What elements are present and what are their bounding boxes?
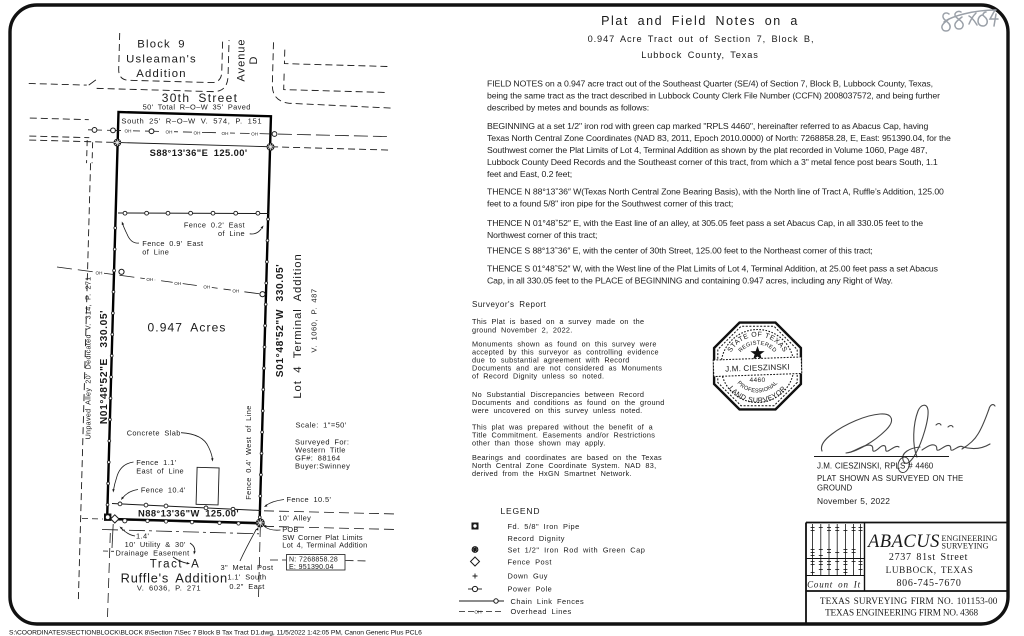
svg-text:feet and East, 0.2 feet;: feet and East, 0.2 feet; — [487, 169, 572, 179]
svg-text:Lot 4 Terminal Addition: Lot 4 Terminal Addition — [292, 253, 304, 398]
svg-text:ABACUS: ABACUS — [866, 532, 940, 552]
svg-text:10' Alley: 10' Alley — [278, 514, 311, 523]
svg-text:BEGINNING at a set 1/2" iron r: BEGINNING at a set 1/2" iron rod with gr… — [487, 121, 929, 131]
svg-text:OH: OH — [174, 281, 181, 286]
svg-text:E: 951390.04: E: 951390.04 — [289, 564, 334, 571]
svg-text:Unpaved Alley 20' Dedicated V.: Unpaved Alley 20' Dedicated V. 314, P. 2… — [84, 277, 93, 440]
svg-text:Chain Link Fences: Chain Link Fences — [511, 597, 585, 606]
svg-text:Fence 0.4' West of Line: Fence 0.4' West of Line — [244, 405, 253, 499]
svg-text:0.2" East: 0.2" East — [229, 582, 264, 591]
svg-text:ground November 2, 2022.: ground November 2, 2022. — [472, 325, 573, 334]
svg-text:Plat and Field Notes on a: Plat and Field Notes on a — [601, 14, 799, 28]
svg-text:S:\COORDINATES\SECTIONBLOCK\BL: S:\COORDINATES\SECTIONBLOCK\BLOCK 8\Sect… — [9, 630, 422, 636]
svg-text:Fence 10.4': Fence 10.4' — [141, 486, 186, 495]
svg-text:OH: OH — [146, 277, 153, 282]
svg-text:Southwest corner the Plat Limi: Southwest corner the Plat Limits of Lot … — [487, 145, 927, 155]
svg-text:THENCE S 88°13‶36″ E, with the: THENCE S 88°13‶36″ E, with the center of… — [487, 246, 873, 256]
svg-text:of Line: of Line — [142, 248, 169, 257]
svg-text:N: 7268858.28: N: 7268858.28 — [289, 557, 338, 564]
svg-text:OH: OH — [222, 131, 229, 136]
svg-text:OH: OH — [474, 610, 482, 616]
svg-text:THENCE N 88°13‶36″ W(Texas Nor: THENCE N 88°13‶36″ W(Texas North Central… — [487, 187, 944, 197]
svg-text:Record Dignity: Record Dignity — [508, 534, 565, 543]
svg-text:Overhead Lines: Overhead Lines — [511, 607, 572, 616]
svg-text:OH: OH — [203, 285, 210, 290]
svg-text:derived from the HxGN Smartnet: derived from the HxGN Smartnet Network. — [472, 469, 632, 478]
svg-text:Count on It: Count on It — [807, 580, 861, 590]
svg-text:Texas North Central Zone Coord: Texas North Central Zone Coordinates (NA… — [487, 133, 951, 143]
svg-text:PLAT SHOWN AS SURVEYED ON THE: PLAT SHOWN AS SURVEYED ON THE — [817, 474, 963, 483]
svg-text:described by metes and bounds: described by metes and bounds as follows… — [487, 103, 649, 113]
svg-text:Avenue: Avenue — [236, 38, 248, 81]
svg-text:SURVEYING: SURVEYING — [942, 542, 989, 551]
svg-text:of Line: of Line — [218, 229, 245, 238]
svg-text:4460: 4460 — [749, 377, 765, 384]
svg-text:Tract A: Tract A — [150, 559, 201, 571]
svg-text:OH: OH — [96, 270, 103, 275]
svg-text:Lubbock County Deed Records an: Lubbock County Deed Records and the Sout… — [487, 157, 938, 167]
svg-text:Cap, in all 330.05 feet to the: Cap, in all 330.05 feet to the PLACE of … — [487, 276, 893, 286]
svg-text:OH: OH — [194, 130, 201, 135]
svg-text:V. 1060, P. 487: V. 1060, P. 487 — [310, 288, 319, 352]
svg-text:2737 81st Street: 2737 81st Street — [889, 552, 968, 563]
svg-text:LEGEND: LEGEND — [501, 506, 541, 516]
svg-text:OH: OH — [166, 130, 173, 135]
svg-text:Lot 4, Terminal Addition: Lot 4, Terminal Addition — [282, 540, 367, 549]
svg-text:0.947 Acres: 0.947 Acres — [148, 321, 227, 335]
svg-text:TEXAS ENGINEERING FIRM NO. 436: TEXAS ENGINEERING FIRM NO. 4368 — [825, 608, 978, 618]
svg-text:N88°13'36"W 125.00': N88°13'36"W 125.00' — [138, 508, 239, 519]
svg-text:N01°48'52"E 330.05': N01°48'52"E 330.05' — [99, 310, 110, 424]
svg-text:Usleaman's: Usleaman's — [126, 54, 197, 66]
svg-text:were uncovered on this survey: were uncovered on this survey unless not… — [471, 406, 643, 415]
svg-text:1.1' South: 1.1' South — [227, 573, 266, 582]
svg-text:GROUND: GROUND — [817, 484, 853, 493]
svg-text:OH: OH — [125, 129, 132, 134]
svg-text:Fence Post: Fence Post — [508, 558, 552, 567]
svg-text:Power Pole: Power Pole — [508, 585, 553, 594]
svg-text:Fd. 5/8" Iron Pipe: Fd. 5/8" Iron Pipe — [508, 522, 580, 531]
svg-text:TEXAS SURVEYING FIRM NO. 10115: TEXAS SURVEYING FIRM NO. 101153-00 — [820, 596, 998, 606]
svg-text:50' Total R–O–W 35' Paved: 50' Total R–O–W 35' Paved — [143, 103, 251, 112]
svg-text:November 5, 2022: November 5, 2022 — [817, 496, 890, 506]
svg-text:THENCE N 01°48‶52″ E, with the: THENCE N 01°48‶52″ E, with the East line… — [487, 218, 923, 228]
svg-text:Concrete Slab: Concrete Slab — [127, 429, 181, 438]
svg-text:Buyer:Swinney: Buyer:Swinney — [295, 462, 350, 471]
svg-text:Drainage Easement: Drainage Easement — [116, 548, 190, 557]
svg-text:other than those shown may app: other than those shown may apply. — [472, 439, 606, 448]
svg-text:LUBBOCK, TEXAS: LUBBOCK, TEXAS — [886, 565, 974, 575]
svg-text:THENCE S 01°48‶52″ W, with the: THENCE S 01°48‶52″ W, with the West line… — [487, 264, 939, 274]
svg-text:feet to a found 5/8" iron pipe: feet to a found 5/8" iron pipe for the S… — [487, 199, 733, 209]
svg-text:Addition: Addition — [136, 68, 186, 80]
svg-text:East of Line: East of Line — [136, 467, 184, 476]
svg-text:J.M. CIESZINSKI, RPLS # 4460: J.M. CIESZINSKI, RPLS # 4460 — [817, 462, 934, 471]
svg-text:Surveyor's Report: Surveyor's Report — [472, 300, 547, 309]
svg-text:Set 1/2" Iron Rod with Green C: Set 1/2" Iron Rod with Green Cap — [508, 546, 646, 555]
svg-text:Down Guy: Down Guy — [508, 572, 549, 581]
svg-text:FIELD NOTES on a 0.947 acre tr: FIELD NOTES on a 0.947 acre tract out of… — [487, 79, 933, 89]
svg-text:D: D — [248, 56, 260, 65]
svg-text:OH: OH — [251, 132, 258, 137]
svg-text:S88°13'36"E 125.00': S88°13'36"E 125.00' — [150, 147, 248, 158]
svg-text:Northwest corner of this tract: Northwest corner of this tract; — [487, 230, 597, 240]
svg-text:806-745-7670: 806-745-7670 — [896, 578, 961, 589]
svg-text:3" Metal Post: 3" Metal Post — [221, 563, 274, 572]
svg-text:V. 6036, P. 271: V. 6036, P. 271 — [137, 584, 201, 593]
svg-text:Scale: 1"=50′: Scale: 1"=50′ — [295, 421, 346, 430]
svg-text:Lubbock County, Texas: Lubbock County, Texas — [641, 50, 759, 60]
svg-text:being the same tract as the tr: being the same tract as the tract descri… — [487, 91, 940, 101]
svg-text:Fence 10.5': Fence 10.5' — [287, 495, 332, 504]
svg-text:South 25' R–O–W V. 574, P. 151: South 25' R–O–W V. 574, P. 151 — [121, 116, 262, 125]
svg-text:of Record Dignity unless so no: of Record Dignity unless so noted. — [472, 371, 604, 380]
svg-text:S01°48'52"W 330.05': S01°48'52"W 330.05' — [275, 264, 286, 378]
svg-text:Block 9: Block 9 — [137, 39, 185, 51]
svg-text:OH: OH — [232, 288, 239, 293]
svg-text:0.947 Acre Tract out of Sectio: 0.947 Acre Tract out of Section 7, Block… — [588, 34, 815, 44]
